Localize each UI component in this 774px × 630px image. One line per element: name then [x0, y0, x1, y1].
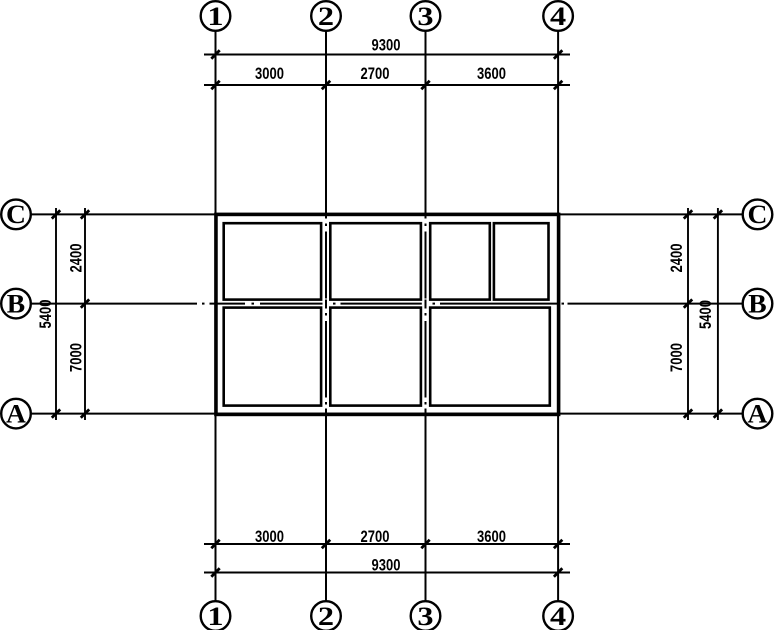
- svg-text:9300: 9300: [372, 556, 401, 575]
- svg-text:2400: 2400: [67, 244, 86, 273]
- svg-text:2: 2: [318, 3, 334, 32]
- svg-text:7000: 7000: [67, 343, 86, 372]
- svg-text:3600: 3600: [477, 65, 506, 84]
- svg-text:5400: 5400: [697, 300, 716, 329]
- svg-text:3000: 3000: [255, 527, 284, 546]
- svg-text:9300: 9300: [372, 36, 401, 55]
- svg-text:B: B: [748, 289, 767, 318]
- svg-text:3000: 3000: [255, 65, 284, 84]
- svg-text:C: C: [748, 200, 768, 229]
- svg-text:2400: 2400: [668, 244, 687, 273]
- svg-text:B: B: [7, 289, 26, 318]
- svg-text:3600: 3600: [477, 527, 506, 546]
- svg-text:5400: 5400: [37, 300, 56, 329]
- svg-text:2700: 2700: [361, 65, 390, 84]
- svg-text:3: 3: [417, 603, 433, 630]
- svg-text:C: C: [6, 200, 26, 229]
- svg-text:3: 3: [417, 3, 433, 32]
- svg-text:7000: 7000: [668, 343, 687, 372]
- svg-text:1: 1: [207, 603, 223, 630]
- svg-text:A: A: [6, 399, 27, 428]
- svg-text:4: 4: [550, 3, 566, 32]
- svg-text:4: 4: [550, 603, 566, 630]
- svg-text:A: A: [748, 399, 769, 428]
- svg-text:2: 2: [318, 603, 334, 630]
- svg-text:2700: 2700: [361, 527, 390, 546]
- svg-text:1: 1: [207, 3, 223, 32]
